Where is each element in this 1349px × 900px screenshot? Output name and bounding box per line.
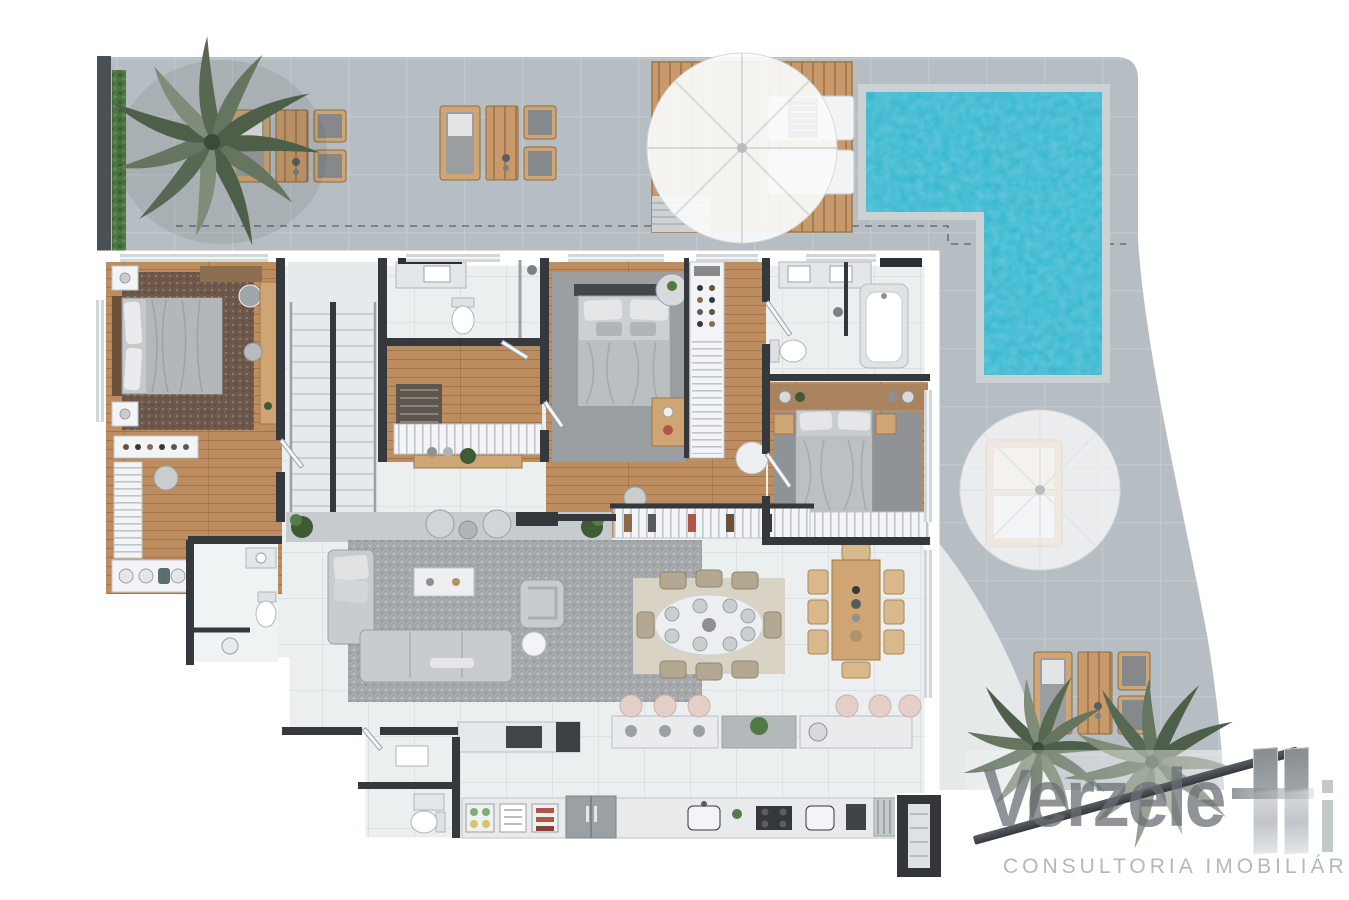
kitchen-sink [688, 806, 720, 830]
master-bedroom [112, 266, 278, 430]
bath3-toilet [770, 340, 806, 362]
herbs [732, 809, 742, 819]
shower-head [833, 307, 843, 317]
glass-side-table [459, 521, 477, 539]
bedroom2-desk [652, 398, 686, 446]
master-mirror [239, 285, 261, 307]
counter-sink [809, 723, 827, 741]
master-dresser [200, 266, 262, 282]
staircase [288, 262, 378, 520]
bar-stool [620, 695, 642, 717]
bar-stool [899, 695, 921, 717]
bar-stool [869, 695, 891, 717]
elevator [896, 794, 942, 878]
bathtub [860, 284, 908, 368]
wash-basin [222, 638, 238, 654]
bar-stool [688, 695, 710, 717]
floor-plan-image: Verzele CONSULTORIA IMOBILIÁRIA [0, 0, 1349, 900]
bar-stool [836, 695, 858, 717]
master-vanity [112, 560, 188, 592]
lounge-chair [426, 510, 454, 538]
terrace-daybed-umbrella [960, 410, 1120, 570]
cutting-board [846, 804, 866, 830]
bedroom3-bed [796, 410, 872, 514]
logo-letter-i-dot [1322, 780, 1333, 793]
closet-ottoman [154, 466, 178, 490]
logo-crossbar [1232, 788, 1314, 799]
logo-tagline: CONSULTORIA IMOBILIÁRIA [1003, 855, 1349, 879]
logo-wordmark: Verzele [983, 758, 1224, 840]
wc-sink [414, 794, 444, 810]
bedroom2-wardrobe [610, 506, 814, 538]
nightstand [876, 414, 896, 434]
apartment [96, 254, 942, 878]
logo-door-icon [1284, 747, 1309, 855]
terrace-side-wall [97, 56, 111, 254]
kitchen-back-counter [462, 796, 930, 838]
wc-toilet [411, 811, 445, 833]
side-table [522, 632, 546, 656]
bar-stool [654, 695, 676, 717]
desk-chair [244, 343, 262, 361]
bath2-toilet [452, 298, 474, 334]
coffee-table [414, 568, 474, 596]
lounge-chair [483, 510, 511, 538]
cooktop [756, 806, 792, 830]
coffee-machine [506, 726, 542, 748]
refrigerator [566, 796, 616, 838]
logo-door-icon [1253, 747, 1278, 855]
console-plant [460, 448, 476, 464]
deck-umbrella [647, 53, 837, 243]
shower-head [527, 265, 537, 275]
prep-sink [806, 806, 834, 830]
laundry-sink [396, 746, 428, 766]
powder-toilet [256, 592, 276, 627]
wardrobe-rail [114, 462, 142, 558]
pool-deck [647, 53, 854, 243]
master-bed [112, 296, 222, 396]
bedroom2-bed [574, 284, 674, 406]
powder-room [190, 542, 278, 662]
oven-tower [556, 722, 580, 752]
verzeletti-logo: Verzele CONSULTORIA IMOBILIÁRIA [960, 740, 1349, 900]
island-plant [750, 717, 768, 735]
armchair [520, 580, 564, 628]
nightstand [774, 414, 794, 434]
logo-letter-i-bar [1322, 800, 1333, 852]
bedroom2-closet-column [690, 262, 724, 458]
